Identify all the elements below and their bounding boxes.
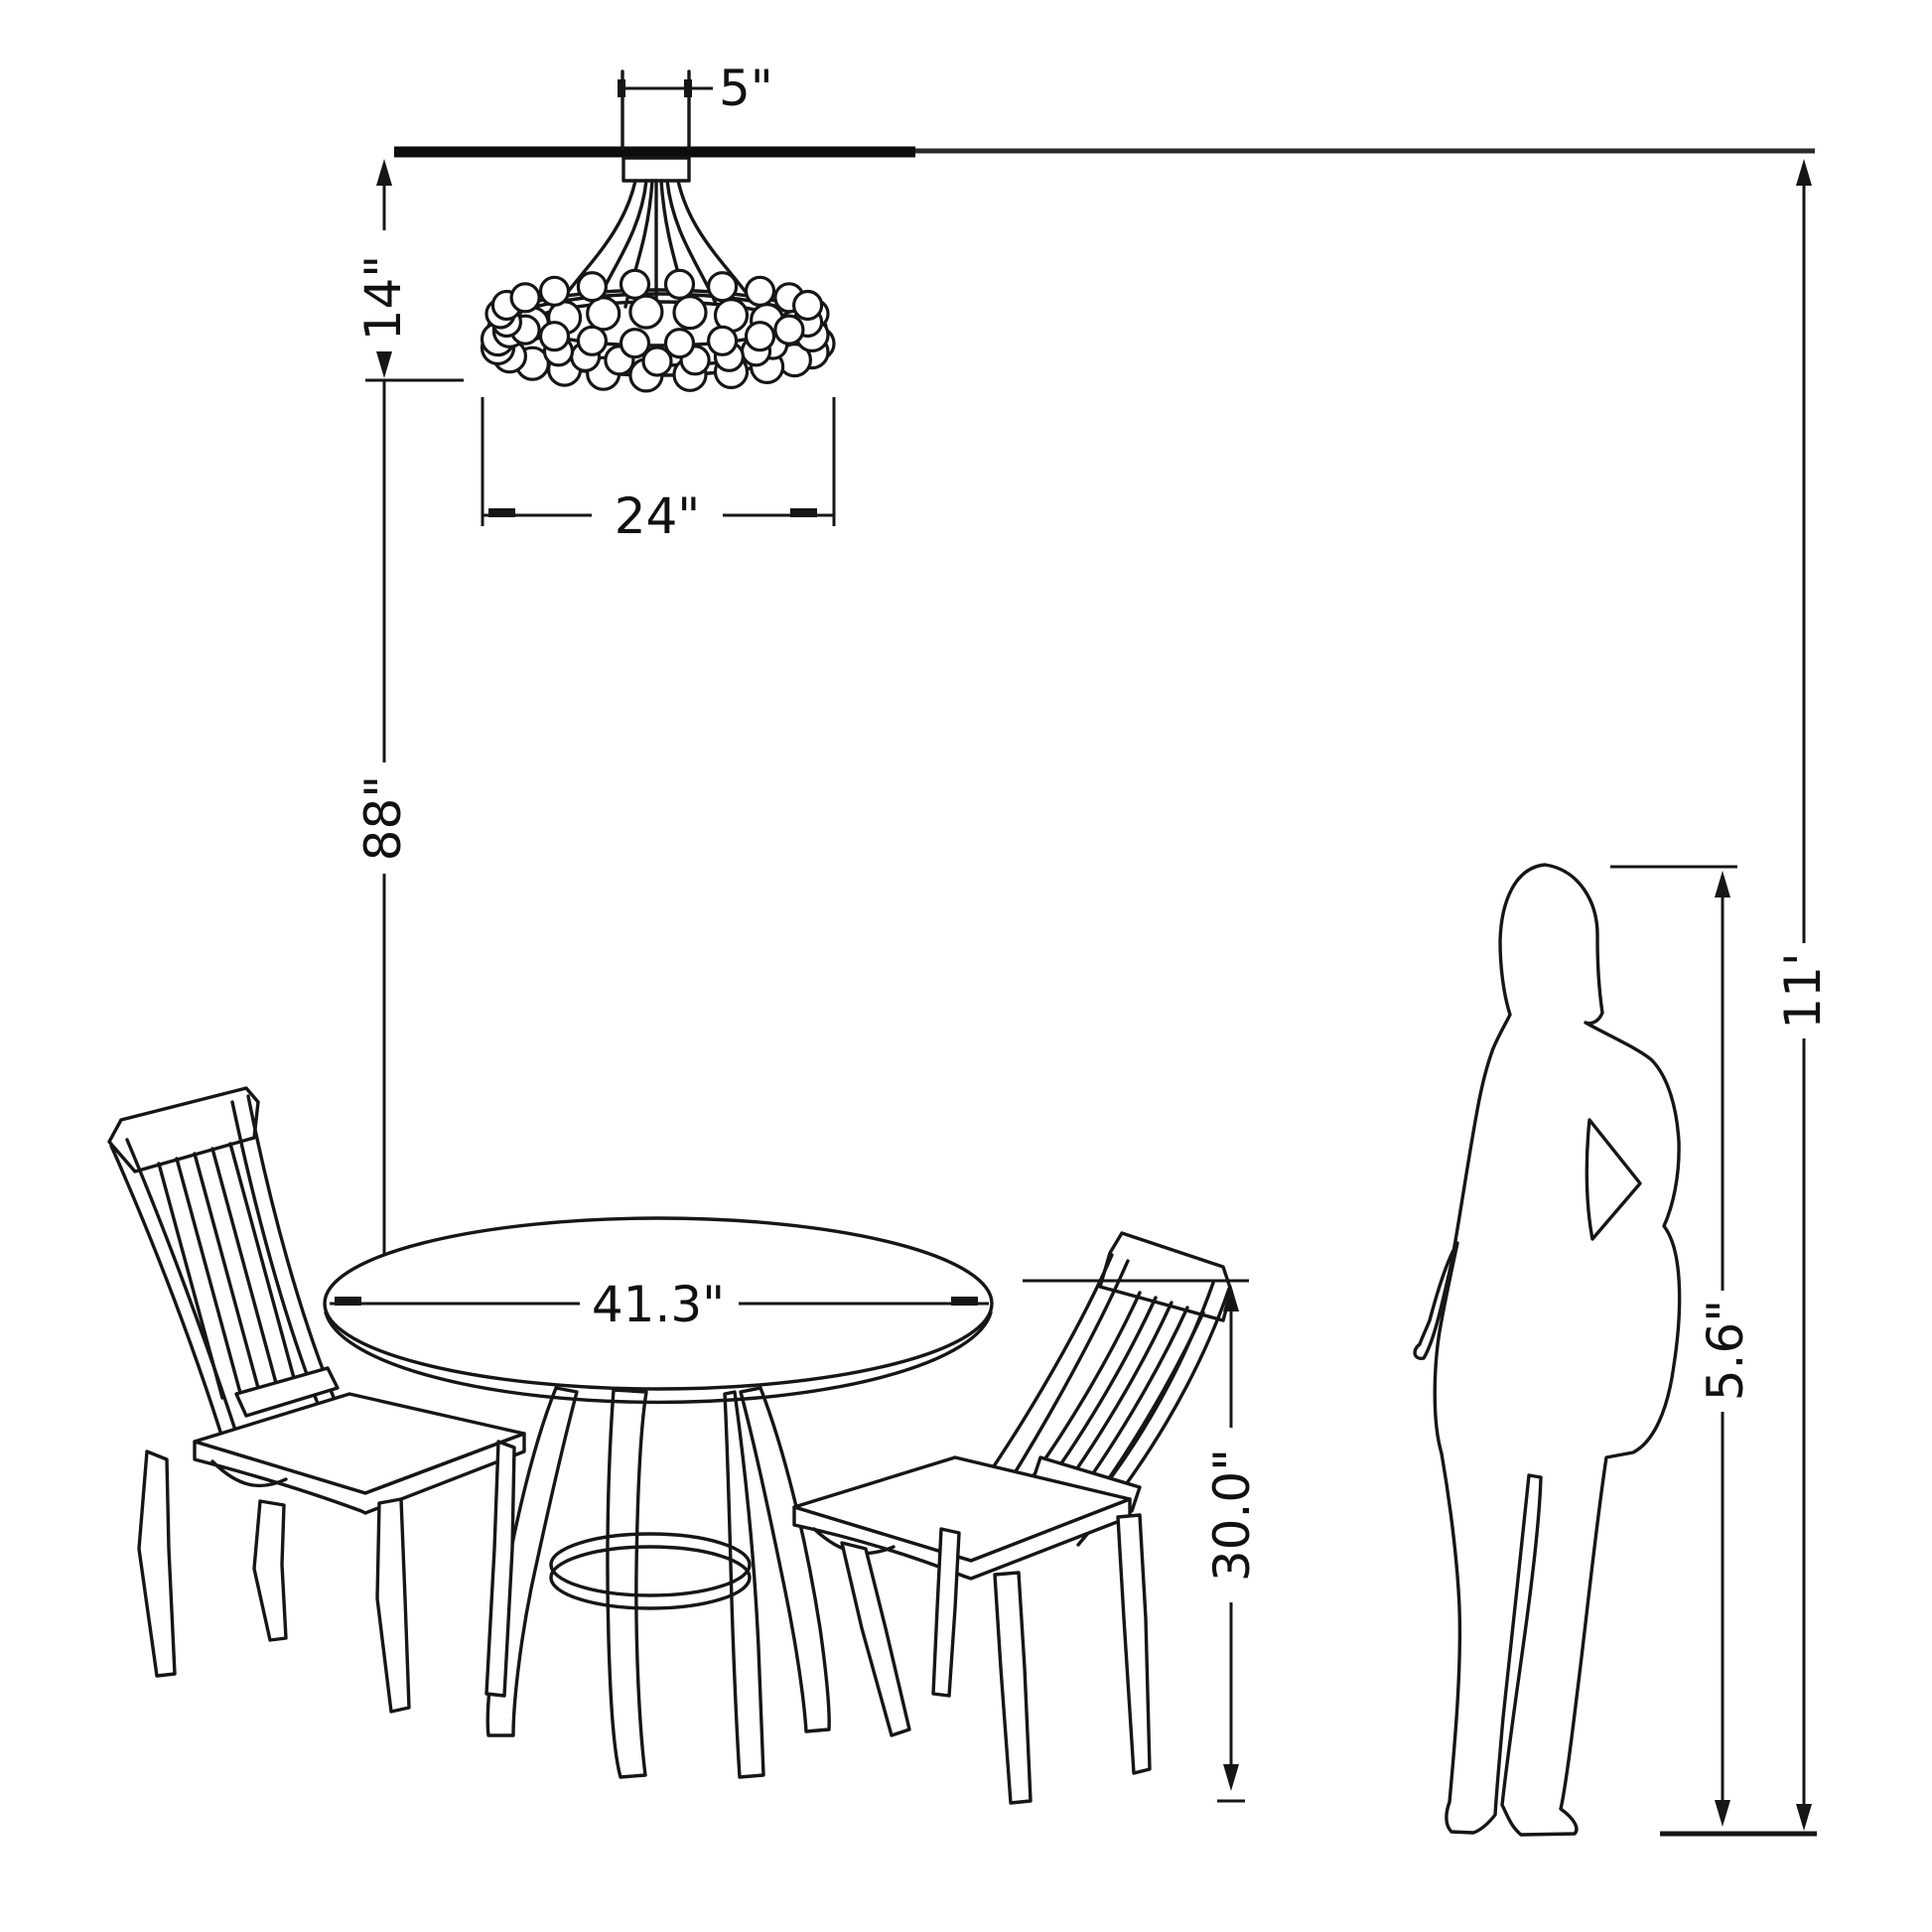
dimension-diagram: 5" 14" 24" 88" [0,0,1932,1932]
dim-fixture-height: 14" [354,159,464,380]
hang-height-label: 88" [354,775,412,862]
fixture-height-label: 14" [354,255,412,342]
fixture-diameter-label: 24" [615,487,701,545]
dim-canopy-width: 5" [618,60,773,117]
chandelier-bead-ring [483,270,835,391]
table-height-label: 30.0" [1203,1449,1261,1582]
dining-chair-left [109,1088,524,1712]
canopy-width-label: 5" [719,60,773,117]
ceiling-line [394,151,1815,152]
table-diameter-label: 41.3" [592,1276,725,1333]
person-silhouette [1415,865,1680,1835]
dim-hang-height: 88" [354,380,412,1289]
dim-fixture-diameter: 24" [483,397,834,545]
chandelier [483,71,835,391]
dim-ceiling-height: 11' [1774,159,1832,1831]
table-pedestal [487,1388,829,1777]
person-height-label: 5.6" [1697,1300,1754,1402]
chandelier-stem [622,71,689,149]
ceiling-height-label: 11' [1774,952,1832,1029]
chandelier-canopy [623,158,689,181]
